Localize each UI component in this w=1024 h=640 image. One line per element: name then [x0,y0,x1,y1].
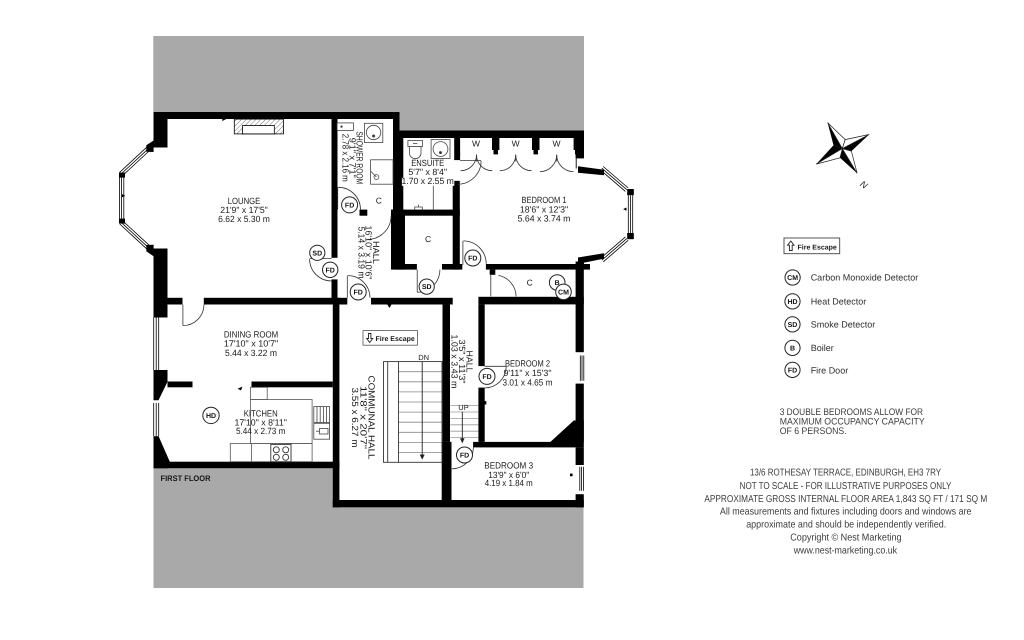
svg-text:CM: CM [558,289,569,296]
svg-text:DN: DN [418,353,429,362]
svg-text:FD: FD [460,453,469,460]
svg-text:HD: HD [206,413,216,420]
svg-text:FD: FD [326,267,335,274]
svg-text:BEDROOM 118'6" x 12'3"5.64 x 3: BEDROOM 118'6" x 12'3"5.64 x 3.74 m [518,195,571,223]
svg-text:W: W [472,139,480,149]
svg-text:DINING ROOM17'10" x 10'7"5.44: DINING ROOM17'10" x 10'7"5.44 x 3.22 m [224,329,278,358]
svg-text:Smoke Detector: Smoke Detector [811,319,876,329]
svg-text:HD: HD [787,299,797,306]
svg-text:Heat Detector: Heat Detector [811,296,867,306]
svg-text:SD: SD [422,284,432,291]
svg-text:FIRST FLOOR: FIRST FLOOR [161,474,211,483]
svg-text:approximate and should be inde: approximate and should be independently … [746,520,946,531]
svg-text:CM: CM [787,275,798,282]
svg-text:Fire Escape: Fire Escape [798,243,837,251]
svg-text:All measurements and fixtures: All measurements and fixtures including … [720,507,972,518]
svg-text:BEDROOM 313'9" x 6'0"4.19 x 1.: BEDROOM 313'9" x 6'0"4.19 x 1.84 m [484,461,533,488]
svg-text:UP: UP [458,403,468,412]
svg-text:C: C [425,234,431,244]
svg-text:FD: FD [468,256,477,263]
svg-text:Carbon Monoxide Detector: Carbon Monoxide Detector [811,273,919,283]
svg-text:C: C [527,277,533,287]
svg-text:SD: SD [788,322,798,329]
svg-text:OF 6 PERSONS.: OF 6 PERSONS. [780,426,847,437]
svg-text:Boiler: Boiler [811,343,834,353]
svg-text:Fire Door: Fire Door [811,365,849,375]
svg-text:B: B [790,345,795,352]
svg-text:C: C [376,195,382,205]
svg-text:SHOWER ROOM9'1" x 7'1"2.78 x 2: SHOWER ROOM9'1" x 7'1"2.78 x 2.16 m [341,131,365,184]
svg-text:Fire Escape: Fire Escape [376,335,415,343]
svg-text:W: W [552,139,560,149]
svg-text:FD: FD [345,202,354,209]
svg-text:FD: FD [482,374,491,381]
svg-text:NOT TO SCALE - FOR ILLUSTRATIV: NOT TO SCALE - FOR ILLUSTRATIVE PURPOSES… [740,481,952,492]
svg-text:www.nest-marketing.co.uk: www.nest-marketing.co.uk [793,546,898,557]
svg-text:Copyright © Nest Marketing: Copyright © Nest Marketing [790,533,901,544]
svg-text:APPROXIMATE GROSS INTERNAL FLO: APPROXIMATE GROSS INTERNAL FLOOR AREA 1,… [704,494,987,505]
svg-text:SD: SD [312,250,322,257]
svg-text:13/6 ROTHESAY TERRACE, EDINBUR: 13/6 ROTHESAY TERRACE, EDINBURGH, EH3 7R… [750,468,941,479]
svg-text:FD: FD [354,290,363,297]
svg-text:BEDROOM 29'11" x 15'3"3.01 x 4: BEDROOM 29'11" x 15'3"3.01 x 4.65 m [503,359,553,388]
svg-text:W: W [512,139,520,149]
svg-text:FD: FD [788,367,797,374]
svg-text:COMMUNAL HALL11'8" x 20'7"3.55: COMMUNAL HALL11'8" x 20'7"3.55 x 6.27 m [350,376,376,460]
